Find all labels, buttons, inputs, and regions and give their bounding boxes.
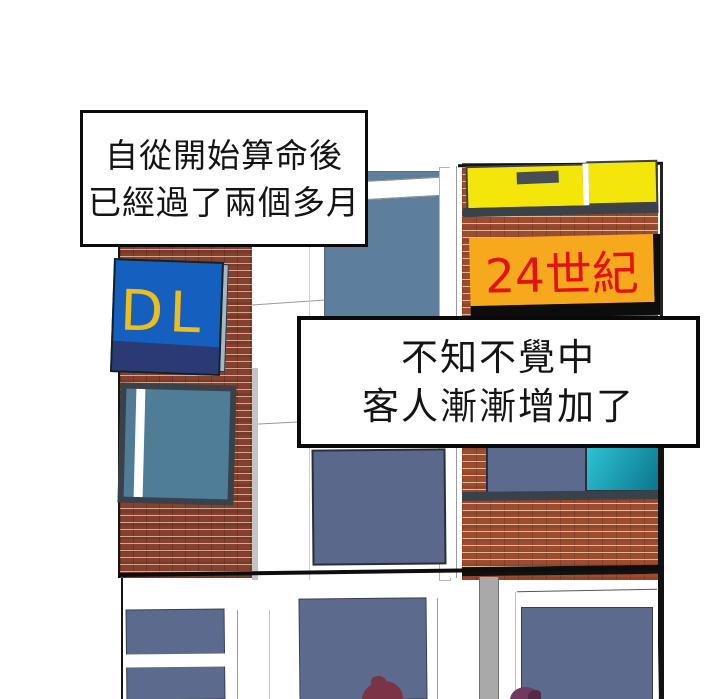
storefront-window-right-glass bbox=[522, 608, 652, 699]
storefront-pier-line-4 bbox=[515, 592, 516, 699]
comic-panel: DL 24世紀 bbox=[0, 0, 720, 699]
right-mid-window bbox=[488, 448, 585, 492]
building-right-edge-upper bbox=[660, 163, 663, 317]
pier-seam-upper bbox=[252, 299, 325, 305]
left-brick-window bbox=[117, 383, 236, 506]
right-mid-window-sill bbox=[462, 490, 658, 501]
yellow-window-right bbox=[588, 162, 656, 204]
storefront-left-edge bbox=[121, 578, 123, 699]
caption-box-1: 自從開始算命後 已經過了兩個多月 bbox=[80, 110, 368, 247]
storefront-pier-line-3 bbox=[437, 598, 438, 699]
blue-sign-face: DL bbox=[110, 258, 224, 376]
blue-sign-bottom-band bbox=[110, 340, 224, 375]
yellow-window-vent bbox=[517, 171, 559, 185]
orange-sign-text: 24世紀 bbox=[484, 234, 639, 306]
blue-sign-text: DL bbox=[119, 278, 208, 346]
pedestrian-head-right-shade bbox=[528, 690, 541, 699]
caption-2-line-1: 不知不覺中 bbox=[401, 333, 596, 382]
orange-sign-face: 24世紀 bbox=[469, 234, 654, 306]
pedestrian-head-left-tuft bbox=[371, 676, 386, 686]
yellow-window-mullion bbox=[582, 163, 589, 205]
storefront-window-left bbox=[127, 609, 225, 699]
yellow-windows bbox=[461, 162, 658, 216]
caption-1-line-2: 已經過了兩個多月 bbox=[88, 179, 360, 226]
storefront-window-middle bbox=[299, 598, 426, 699]
orange-sign: 24世紀 bbox=[469, 234, 661, 322]
storefront-pier-line-2 bbox=[269, 610, 270, 699]
mid-left-window bbox=[314, 450, 445, 563]
storefront-pier-line-1 bbox=[237, 610, 238, 699]
caption-1-line-1: 自從開始算命後 bbox=[105, 132, 343, 179]
caption-box-2: 不知不覺中 客人漸漸增加了 bbox=[297, 316, 700, 448]
storefront-window-left-bar bbox=[125, 653, 226, 667]
caption-2-line-2: 客人漸漸增加了 bbox=[362, 382, 635, 431]
pier-shade-strip bbox=[252, 368, 258, 580]
teal-window bbox=[587, 448, 658, 490]
blue-storefront-sign: DL bbox=[112, 256, 232, 376]
corner-pillar-shade bbox=[479, 577, 499, 699]
building-right-edge-lower bbox=[658, 448, 664, 699]
